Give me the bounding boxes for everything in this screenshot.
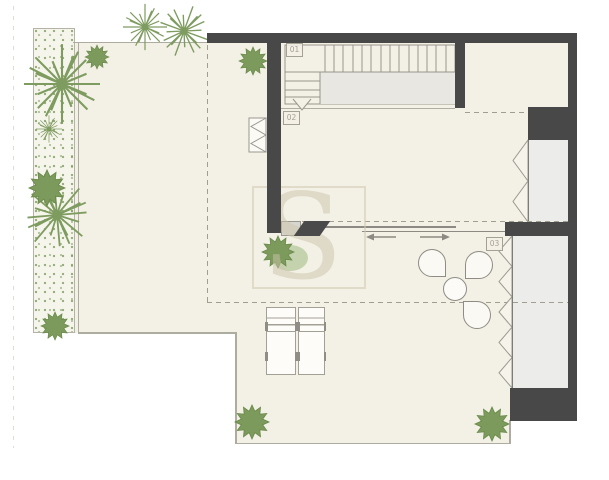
fan-chair (465, 251, 493, 279)
folding-doors-lower (499, 236, 512, 388)
lounger-wheel (324, 322, 327, 331)
bush-icon (41, 312, 69, 340)
lounger-wheel (297, 352, 300, 361)
lounger-backrest (267, 312, 295, 334)
fan-chair (463, 301, 491, 329)
lounger-wheel (297, 322, 300, 331)
palm-icon (123, 4, 167, 50)
wall-block-lower-right (510, 388, 577, 421)
room-label-stairs: 01 (286, 43, 303, 57)
bush-icon (29, 170, 65, 206)
sun-lounger (298, 307, 325, 375)
wall-stair-partition (455, 43, 465, 108)
fan-chair (418, 249, 446, 277)
room-label-lounge: 03 (486, 237, 503, 251)
lounger-wheel (265, 352, 268, 361)
palm-icon (36, 115, 62, 142)
wall-west-interior (267, 43, 281, 233)
staircase (285, 45, 455, 110)
lounger-wheel (324, 352, 327, 361)
round-table (443, 277, 467, 301)
slide-left-arrow-icon (366, 234, 396, 241)
floor-plan-canvas: S 01 02 03 (0, 0, 609, 480)
sun-lounger (266, 307, 296, 375)
wall-block-mid-right (505, 222, 577, 236)
bush-icon (239, 47, 267, 75)
wall-block-upper-right (528, 107, 577, 140)
bush-icon (475, 407, 509, 441)
west-window (249, 118, 266, 152)
lounger-wheel (265, 322, 268, 331)
wall-north (207, 33, 577, 43)
wall-east (568, 33, 577, 403)
slide-right-arrow-icon (420, 234, 450, 241)
lounger-backrest (299, 312, 324, 334)
bush-icon (85, 45, 109, 69)
folding-doors-upper (513, 140, 528, 222)
room-label-hall: 02 (283, 111, 300, 125)
bush-icon (235, 405, 269, 439)
